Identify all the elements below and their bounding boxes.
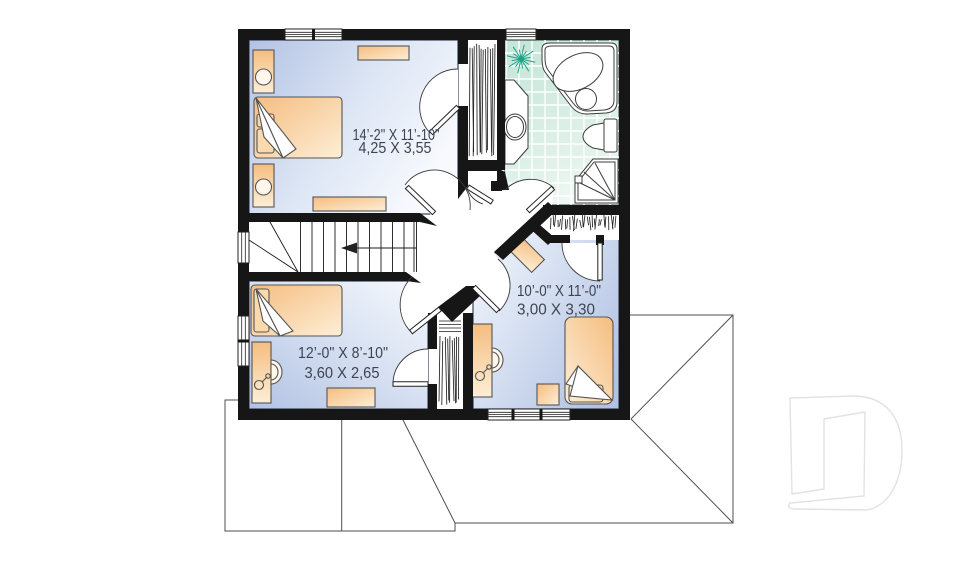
- svg-text:3,60 X 2,65: 3,60 X 2,65: [305, 365, 380, 382]
- svg-text:4,25 X 3,55: 4,25 X 3,55: [359, 140, 432, 157]
- svg-text:10’-0" X 11’-0": 10’-0" X 11’-0": [517, 283, 601, 300]
- svg-text:3,00 X 3,30: 3,00 X 3,30: [517, 302, 595, 319]
- svg-text:12’-0" X 8’-10": 12’-0" X 8’-10": [298, 345, 388, 362]
